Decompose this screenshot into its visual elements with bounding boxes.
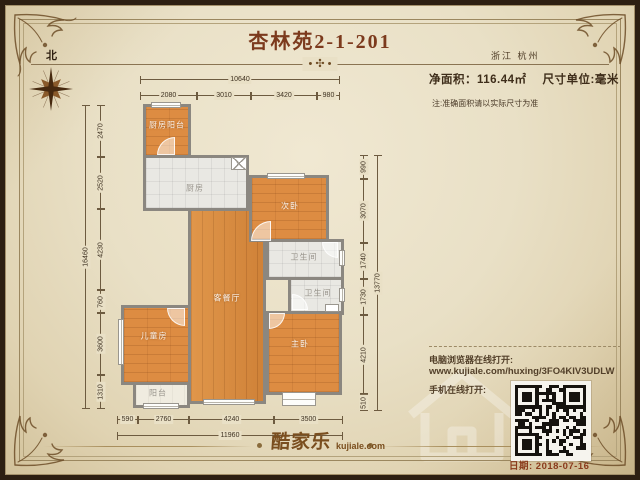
dim-left-segment: 2520 bbox=[100, 157, 101, 209]
room-label-kitchen-balcony: 厨房阳台 bbox=[149, 120, 185, 131]
dim-bottom-segment: 4240 bbox=[189, 419, 274, 420]
dim-right-segment: 510 bbox=[363, 394, 364, 411]
dim-right-segment: 1730 bbox=[363, 279, 364, 315]
north-label: 北 bbox=[46, 47, 57, 63]
unit-label: 尺寸单位:毫米 bbox=[543, 71, 619, 87]
area-info: 净面积：116.44㎡ 尺寸单位:毫米 bbox=[429, 71, 619, 87]
dim-top-segment: 980 bbox=[317, 95, 340, 96]
room-label-bathroom-lower: 卫生间 bbox=[305, 288, 332, 299]
dim-right-segment: 990 bbox=[363, 155, 364, 179]
qr-code-modules bbox=[515, 385, 587, 457]
room-label-balcony: 阳台 bbox=[149, 388, 167, 399]
room-label-master-bedroom: 主卧 bbox=[291, 339, 309, 350]
dim-left-segment: 2470 bbox=[100, 105, 101, 157]
window bbox=[151, 102, 181, 108]
room-label-kids-room: 儿童房 bbox=[141, 331, 168, 342]
dim-top-segment: 2080 bbox=[140, 95, 197, 96]
qr-code bbox=[511, 381, 591, 461]
room-label-kitchen: 厨房 bbox=[186, 183, 204, 194]
kitchen-fixture bbox=[231, 157, 247, 170]
dim-right-total: 13770 bbox=[377, 155, 378, 411]
dim-top-total: 10640 bbox=[140, 79, 340, 80]
window bbox=[267, 173, 305, 179]
dim-left-segment: 760 bbox=[100, 290, 101, 313]
dim-left-segment: 1310 bbox=[100, 375, 101, 409]
divider-ornament-icon: • ✣ • bbox=[302, 57, 337, 71]
room-label-secondary-bedroom: 次卧 bbox=[281, 201, 299, 212]
corner-flourish-icon bbox=[12, 394, 86, 468]
dim-left-total: 16460 bbox=[85, 105, 86, 409]
bay-window bbox=[282, 392, 316, 406]
footer-dot-icon bbox=[257, 443, 262, 448]
date-label: 日期: 2018-07-16 bbox=[509, 458, 589, 472]
dim-bottom-segment: 590 bbox=[117, 419, 138, 420]
room-label-living-dining: 客餐厅 bbox=[214, 293, 241, 304]
window bbox=[203, 399, 255, 405]
net-area-label: 净面积：116.44㎡ bbox=[429, 71, 527, 87]
brand-logo: 酷家乐 kujiale.com bbox=[271, 432, 385, 454]
dim-bottom-segment: 3500 bbox=[274, 419, 343, 420]
window bbox=[118, 319, 124, 365]
room-label-bathroom-upper: 卫生间 bbox=[291, 252, 318, 263]
dim-right-segment: 1740 bbox=[363, 243, 364, 279]
dim-left-segment: 3600 bbox=[100, 313, 101, 375]
window bbox=[339, 288, 345, 302]
page-title: 杏林苑2-1-201 bbox=[5, 25, 635, 54]
brand-name-en: kujiale.com bbox=[336, 441, 385, 454]
location-label: 浙江 杭州 bbox=[491, 49, 540, 62]
compass-icon bbox=[29, 67, 73, 111]
pc-open-label: 电脑浏览器在线打开: bbox=[429, 353, 513, 366]
dim-right-segment: 3070 bbox=[363, 179, 364, 243]
floorplan-sheet: 杏林苑2-1-201 • ✣ • 浙江 杭州 净面积：116.44㎡ 尺寸单位:… bbox=[0, 0, 640, 480]
dim-bottom-segment: 2760 bbox=[138, 419, 189, 420]
dim-top-segment: 3420 bbox=[251, 95, 317, 96]
brand-name-cn: 酷家乐 bbox=[270, 432, 332, 454]
share-url-link[interactable]: www.kujiale.com/huxing/3FO4KIV3UDLW bbox=[429, 366, 614, 377]
toilet-fixture bbox=[325, 304, 339, 312]
footer-rule-left bbox=[43, 446, 253, 447]
area-note: 注:准确面积请以实际尺寸为准 bbox=[432, 98, 538, 109]
window bbox=[143, 403, 179, 409]
window bbox=[339, 250, 345, 266]
dim-right-segment: 4210 bbox=[363, 315, 364, 394]
mobile-open-label: 手机在线打开: bbox=[429, 383, 486, 396]
dim-left-segment: 4230 bbox=[100, 209, 101, 290]
share-divider bbox=[429, 346, 621, 347]
dim-top-segment: 3010 bbox=[197, 95, 251, 96]
